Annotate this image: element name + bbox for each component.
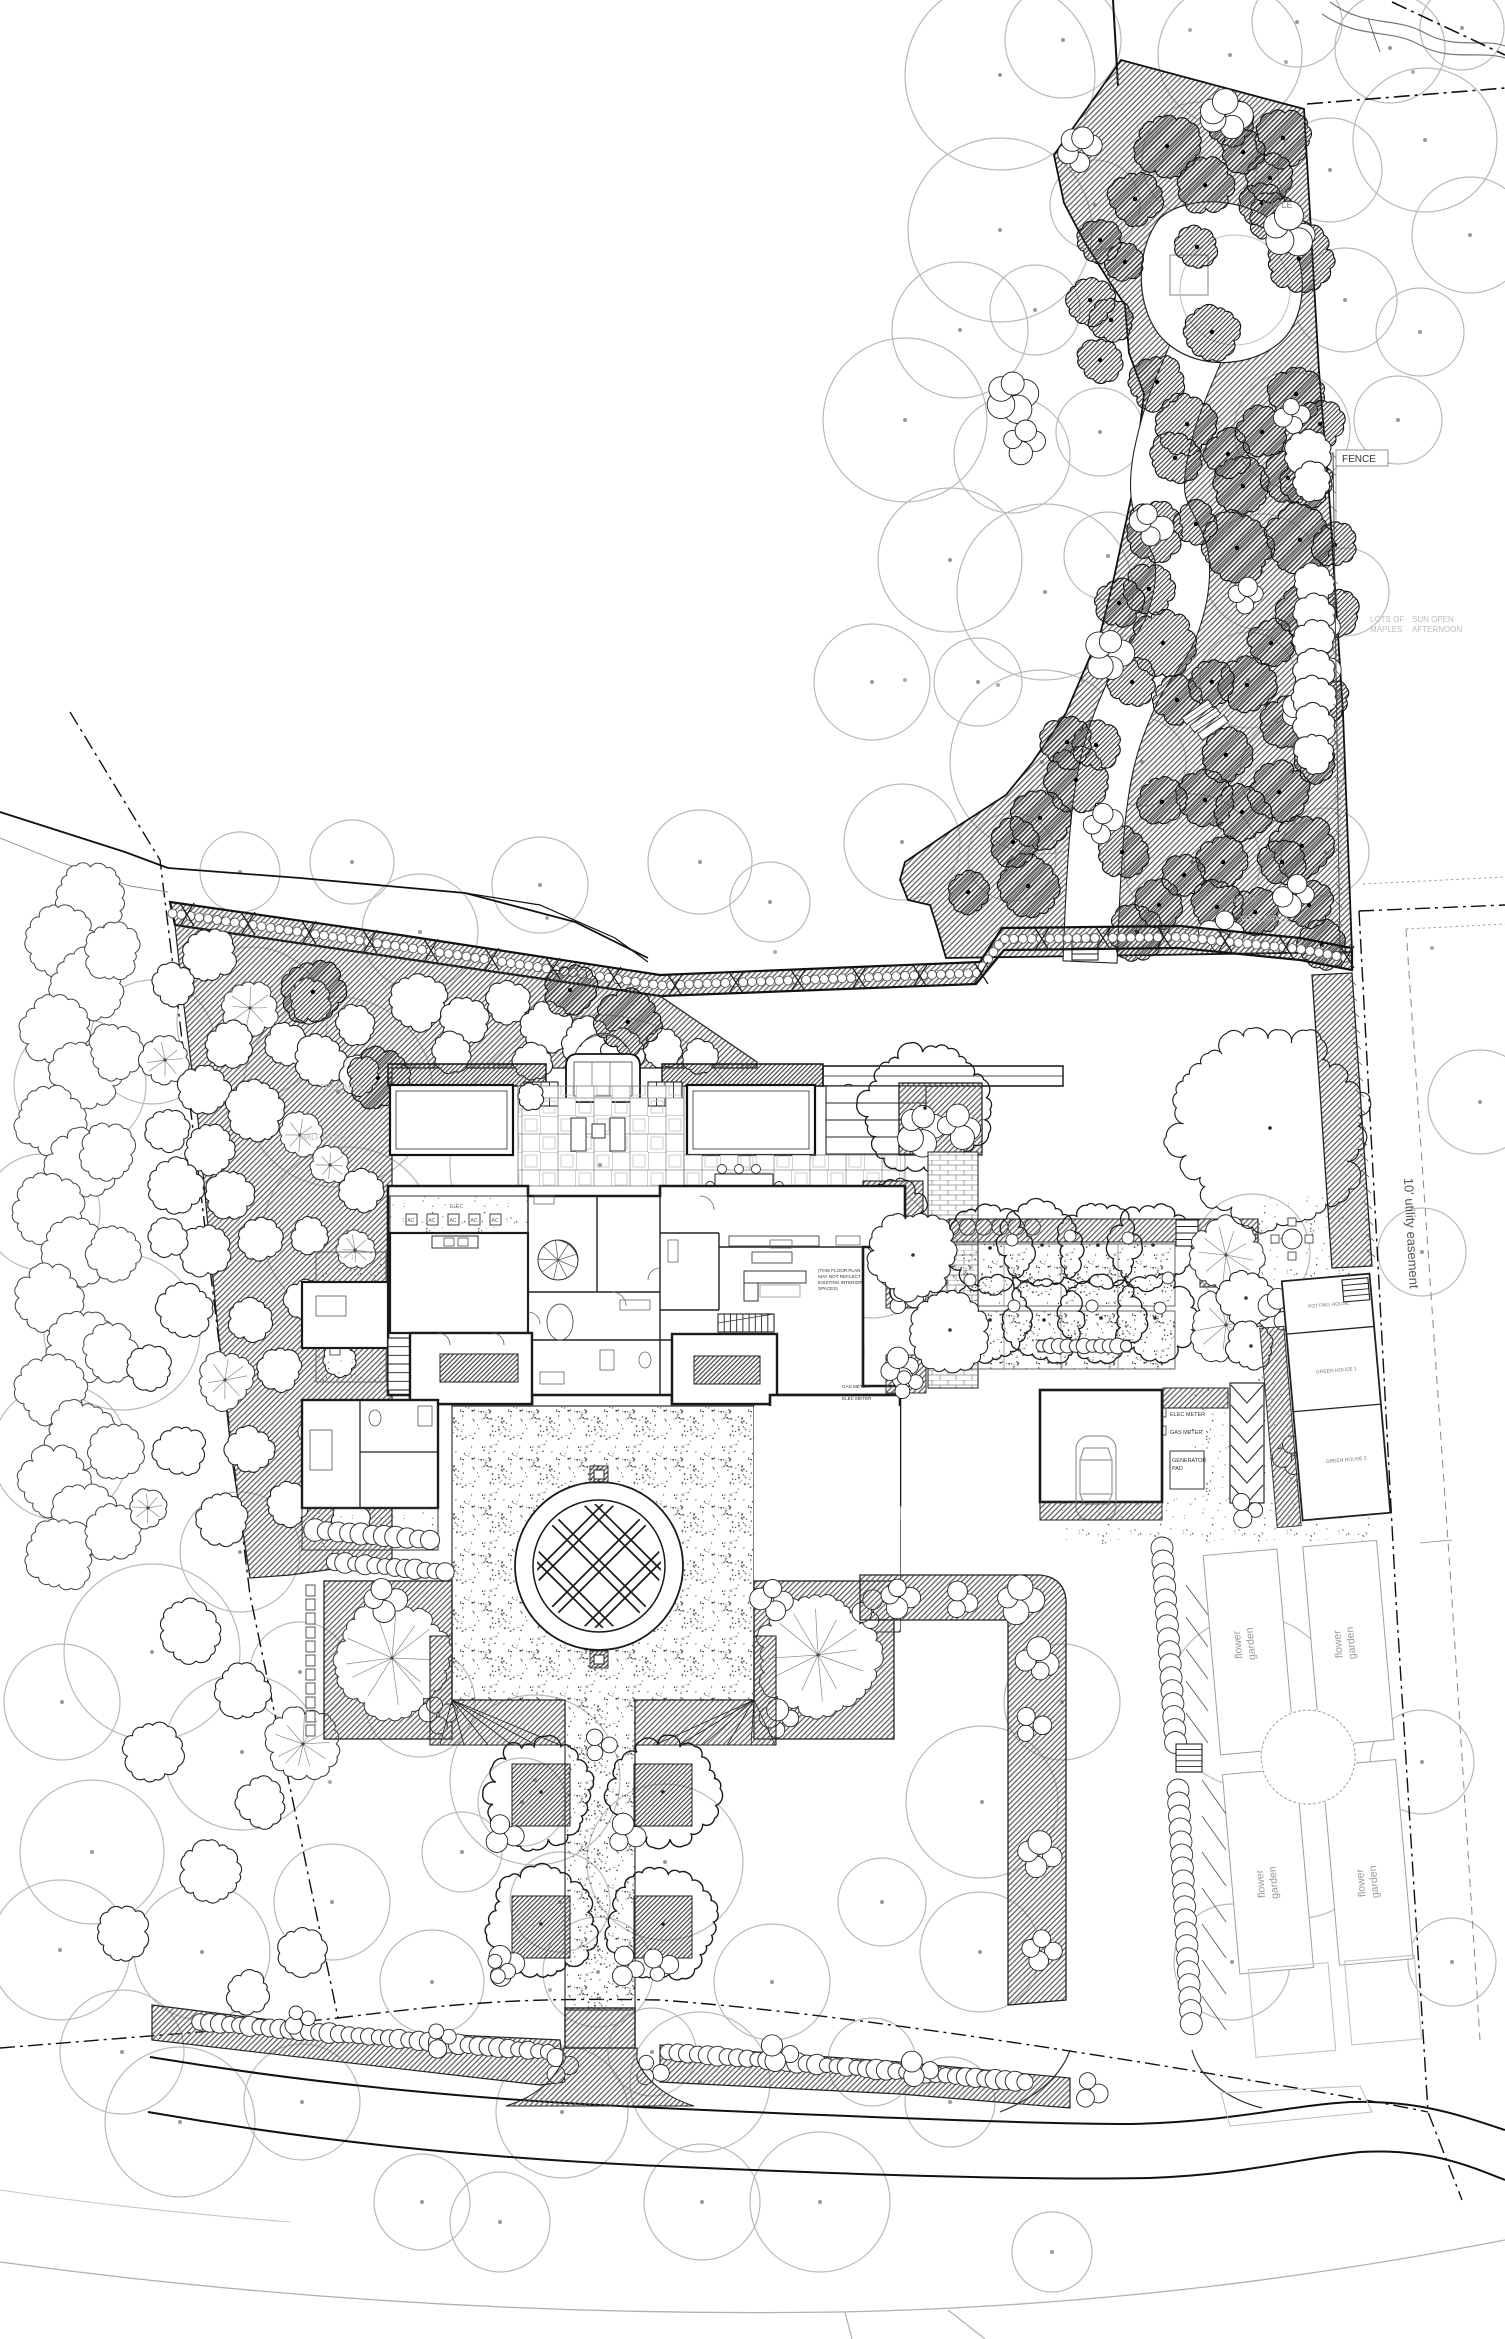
svg-text:AC: AC <box>429 1218 436 1224</box>
svg-text:HALF DEAD: HALF DEAD <box>300 1133 345 1142</box>
svg-text:MAY NOT REFLECT: MAY NOT REFLECT <box>818 1274 861 1279</box>
svg-text:LOTS OF: LOTS OF <box>1370 615 1404 624</box>
svg-text:FENCE: FENCE <box>1342 454 1376 465</box>
svg-text:MAPLE: MAPLE <box>1232 895 1259 904</box>
svg-text:GENERATOR: GENERATOR <box>1172 1458 1206 1464</box>
svg-text:SPACES): SPACES) <box>818 1286 838 1291</box>
svg-text:MAPLE: MAPLE <box>1262 200 1293 210</box>
svg-text:EXISTING INTERIOR: EXISTING INTERIOR <box>818 1280 863 1285</box>
svg-text:flower: flower <box>1354 1868 1368 1897</box>
svg-text:AC: AC <box>471 1218 478 1224</box>
svg-text:AC: AC <box>408 1218 415 1224</box>
svg-text:AC: AC <box>450 1218 457 1224</box>
svg-text:SPECIMEN: SPECIMEN <box>320 1083 362 1092</box>
svg-text:flower: flower <box>1331 1629 1345 1658</box>
svg-text:GAS METER: GAS METER <box>842 1384 870 1389</box>
svg-text:ELEC METER: ELEC METER <box>1170 1412 1205 1418</box>
svg-text:AC: AC <box>492 1218 499 1224</box>
svg-text:ELEC METER: ELEC METER <box>842 1396 872 1401</box>
svg-text:flower: flower <box>1231 1630 1245 1659</box>
svg-text:ELEC: ELEC <box>450 1204 463 1210</box>
svg-text:SUN OPEN: SUN OPEN <box>1412 615 1454 624</box>
svg-text:flower: flower <box>1254 1869 1268 1898</box>
svg-text:PAD: PAD <box>1172 1466 1183 1472</box>
svg-text:AFTERNOON: AFTERNOON <box>1412 625 1462 634</box>
svg-text:(THIS FLOOR PLAN: (THIS FLOOR PLAN <box>818 1268 860 1273</box>
svg-text:MAPLES: MAPLES <box>1370 625 1402 634</box>
svg-text:GAS METER: GAS METER <box>1170 1430 1202 1436</box>
svg-text:TREE SHADE: TREE SHADE <box>1240 915 1291 924</box>
